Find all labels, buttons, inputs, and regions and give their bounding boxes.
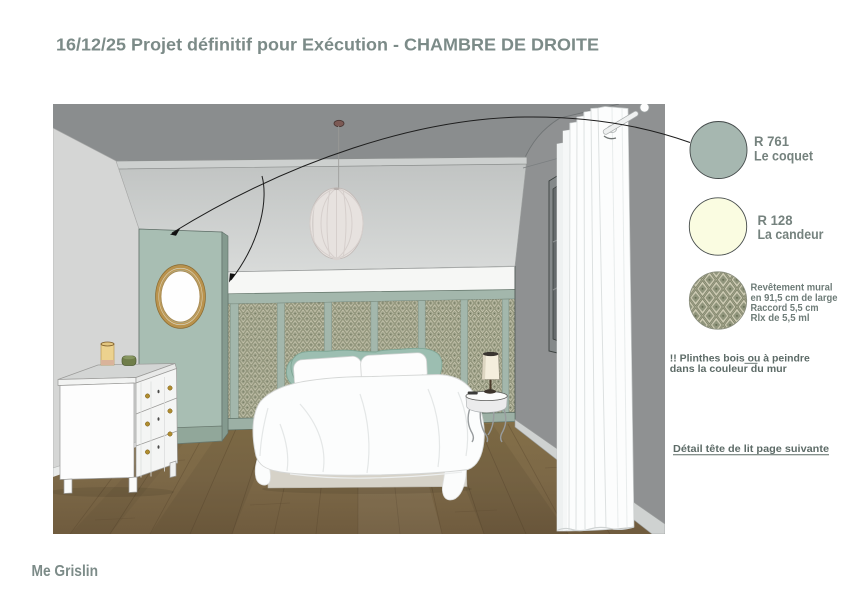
- svg-text:Détail tête de lit page suivan: Détail tête de lit page suivante: [673, 443, 829, 455]
- svg-text:La candeur: La candeur: [758, 227, 825, 242]
- svg-text:Le coquet: Le coquet: [754, 149, 813, 164]
- svg-text:16/12/25 Projet définitif pour: 16/12/25 Projet définitif pour Exécution…: [56, 35, 599, 55]
- svg-text:Rlx de 5,5 ml: Rlx de 5,5 ml: [751, 313, 810, 324]
- svg-text:R 128: R 128: [758, 213, 793, 228]
- svg-text:dans la couleur du mur: dans la couleur du mur: [670, 364, 787, 375]
- svg-text:!! Plinthes bois ou à peindre: !! Plinthes bois ou à peindre: [670, 353, 810, 364]
- svg-text:Me Grislin: Me Grislin: [32, 563, 99, 580]
- svg-text:R 761: R 761: [754, 134, 789, 149]
